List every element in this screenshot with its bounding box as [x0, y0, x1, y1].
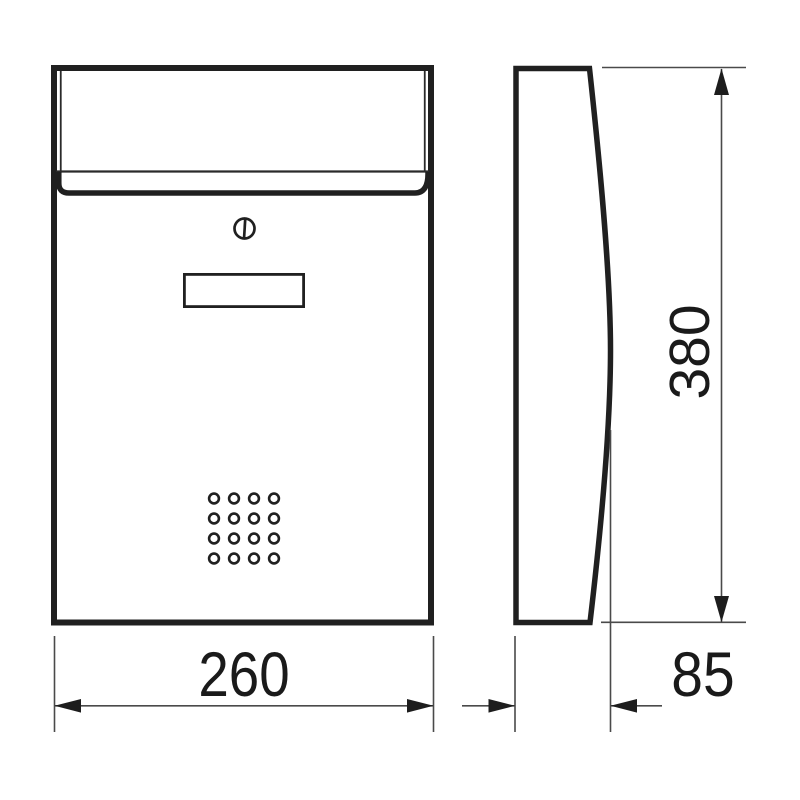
svg-text:260: 260 — [198, 640, 289, 709]
svg-text:85: 85 — [671, 639, 734, 709]
svg-text:380: 380 — [658, 304, 722, 399]
